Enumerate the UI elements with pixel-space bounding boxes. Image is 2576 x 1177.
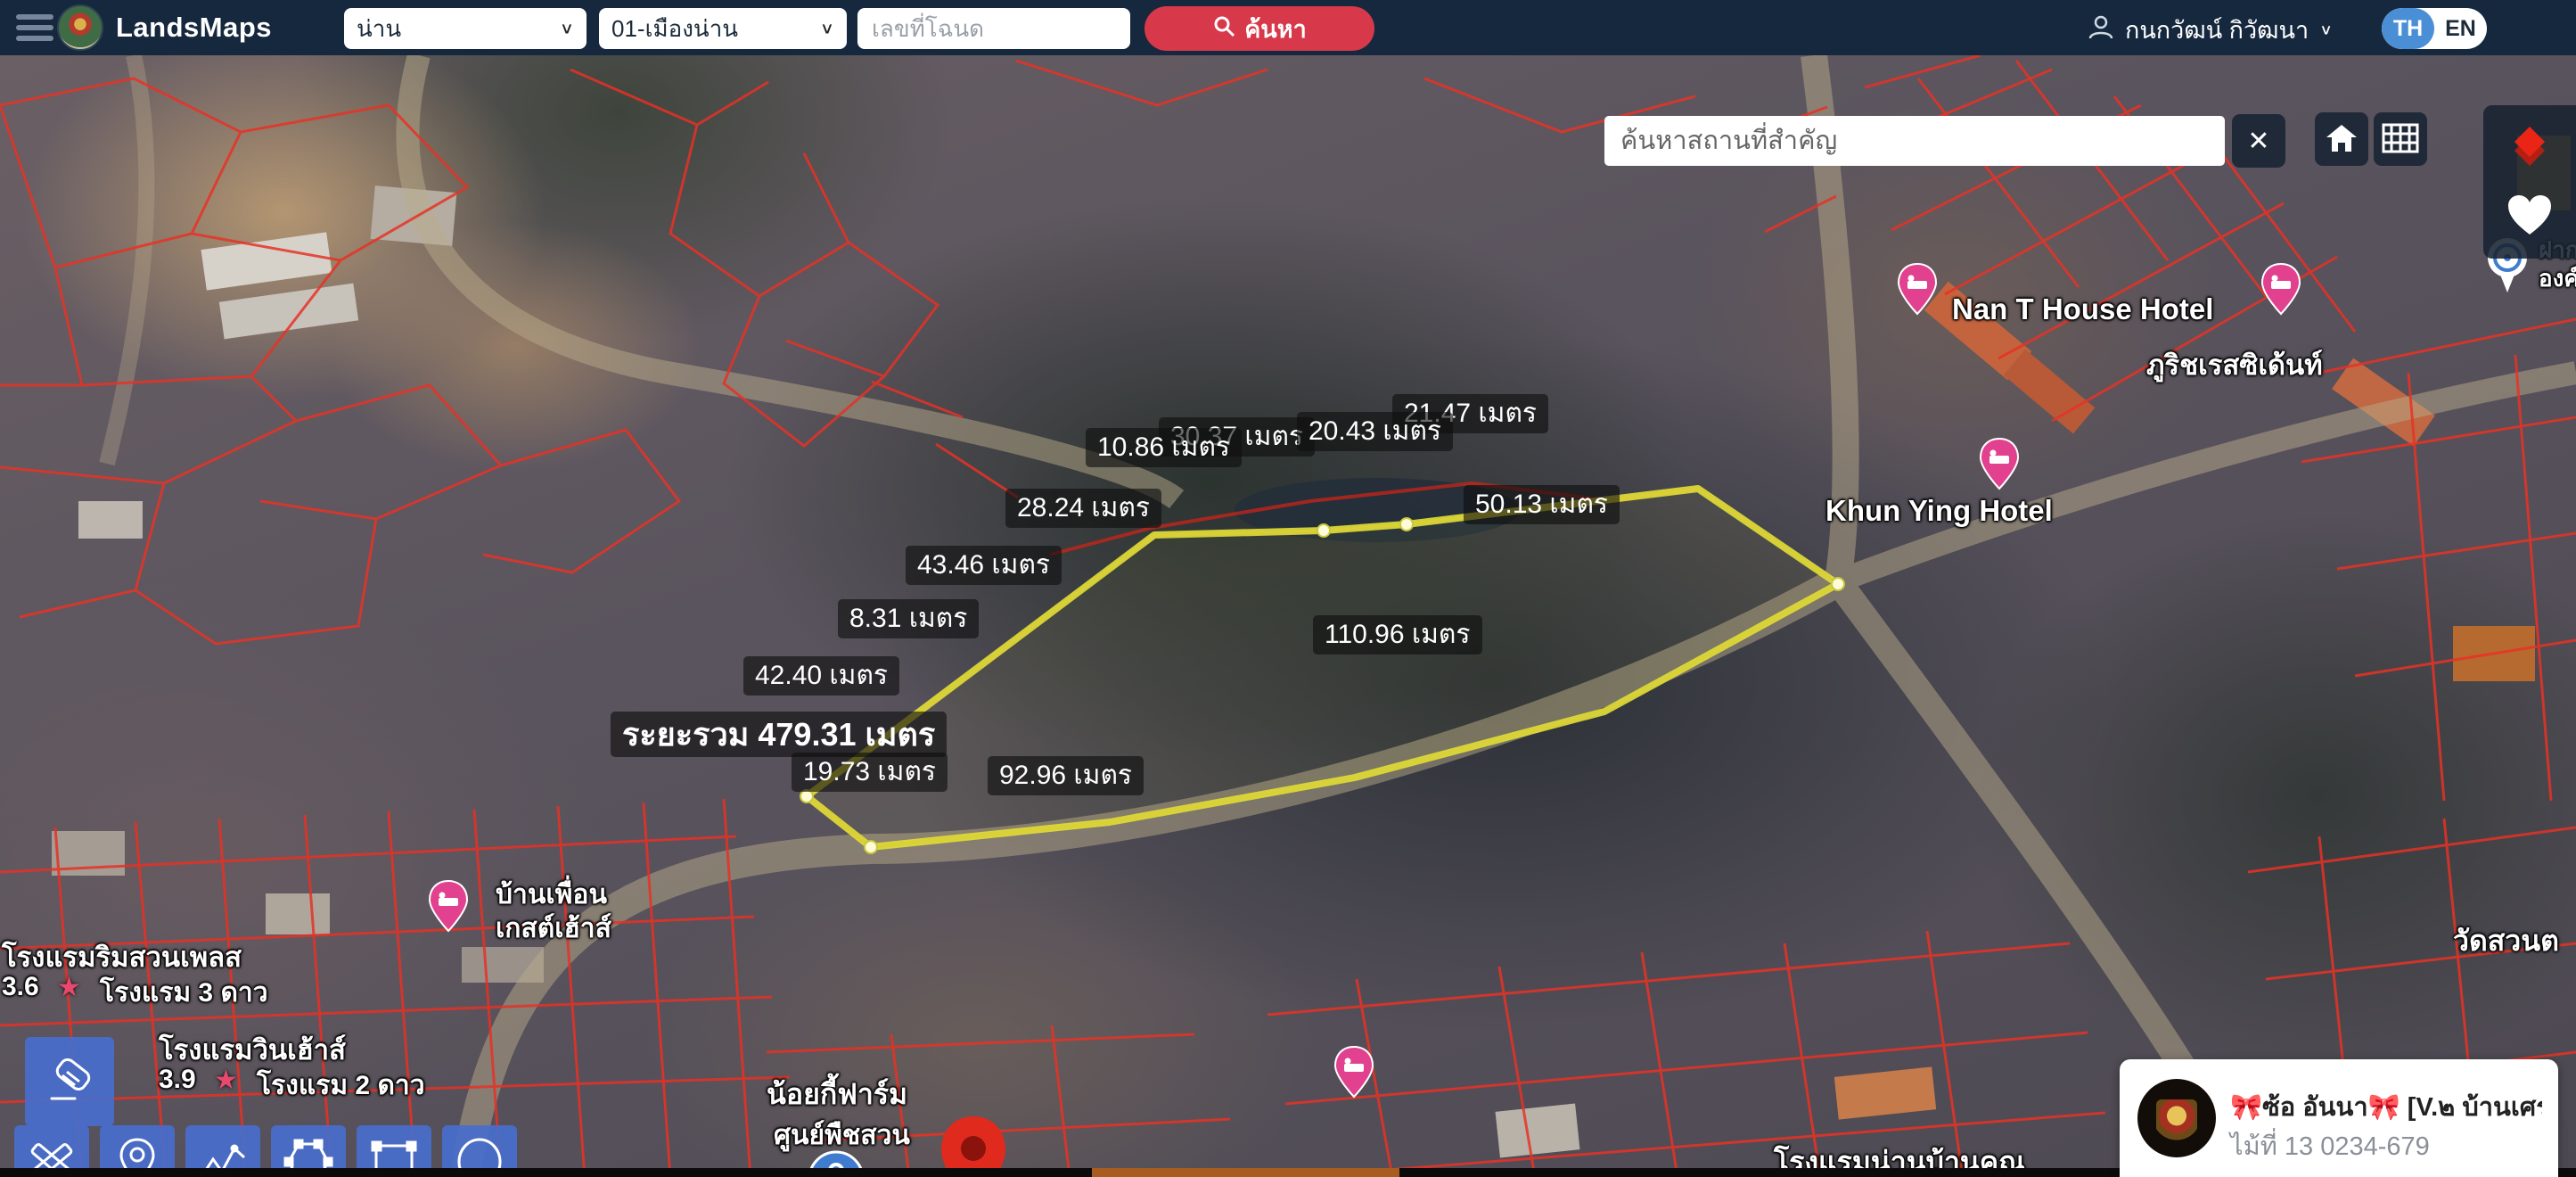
top-navbar: LandsMaps น่าน ∨ 01-เมืองน่าน ∨ ค้นหา: [0, 0, 2576, 55]
eraser-tool-button[interactable]: [25, 1037, 114, 1126]
hotel-pin[interactable]: [1979, 437, 2020, 495]
ad-subtitle: ไม้ที่ 13 0234-679: [2230, 1125, 2430, 1166]
chevron-down-icon: ∨: [820, 20, 834, 38]
app-title: LandsMaps: [116, 12, 272, 44]
heart-icon: [2506, 193, 2553, 241]
ad-title: 🎀ซ้อ อันนา🎀 [V.๒ บ้านเศรษฐสิ...: [2230, 1086, 2542, 1127]
province-select-value: น่าน: [357, 11, 401, 47]
close-icon: ✕: [2247, 126, 2269, 157]
bow-icon: 🎀: [2368, 1093, 2400, 1122]
user-menu[interactable]: กนกวัฒน์ กิวัฒนา ∨: [2088, 11, 2333, 49]
district-select-value: 01-เมืองน่าน: [611, 11, 738, 47]
favorites-button[interactable]: [2498, 185, 2561, 248]
ad-logo: [2137, 1079, 2216, 1157]
menu-button[interactable]: [16, 14, 53, 41]
district-select[interactable]: 01-เมืองน่าน ∨: [599, 8, 847, 49]
grid-icon: [2382, 123, 2419, 156]
deed-number-input[interactable]: [857, 8, 1130, 49]
home-icon: [2324, 120, 2359, 159]
lang-th-button[interactable]: TH: [2382, 8, 2434, 49]
search-icon: [1212, 14, 1235, 44]
grid-layer-button[interactable]: [2374, 112, 2427, 166]
language-toggle: TH EN: [2382, 8, 2487, 49]
hotel-pin[interactable]: [1897, 262, 1938, 320]
landsmaps-app: 21.47 เมตร30.37 เมตร20.43 เมตร10.86 เมตร…: [0, 0, 2576, 1177]
map-canvas[interactable]: [0, 55, 2576, 1177]
layers-icon: [2505, 120, 2555, 175]
map-side-panel: [2483, 105, 2576, 259]
search-button[interactable]: ค้นหา: [1144, 6, 1374, 51]
hotel-pin[interactable]: [1333, 1045, 1374, 1103]
ad-card[interactable]: 🎀ซ้อ อันนา🎀 [V.๒ บ้านเศรษฐสิ... ไม้ที่ 1…: [2120, 1059, 2558, 1177]
bow-icon: 🎀: [2230, 1093, 2262, 1122]
user-icon: [2088, 13, 2114, 46]
lang-en-button[interactable]: EN: [2434, 8, 2487, 49]
layers-button[interactable]: [2498, 116, 2561, 178]
department-of-lands-logo: [57, 4, 103, 51]
home-extent-button[interactable]: [2315, 112, 2368, 166]
chevron-down-icon: ∨: [560, 20, 574, 38]
place-search-input[interactable]: [1604, 116, 2225, 166]
chevron-down-icon: ∨: [2319, 21, 2333, 39]
hotel-pin[interactable]: [2260, 262, 2301, 320]
eraser-icon: [45, 1056, 94, 1108]
hotel-pin[interactable]: [428, 879, 469, 937]
place-search-close-button[interactable]: ✕: [2232, 114, 2285, 168]
province-select[interactable]: น่าน ∨: [344, 8, 587, 49]
search-button-label: ค้นหา: [1244, 10, 1306, 48]
user-name: กนกวัฒน์ กิวัฒนา: [2125, 11, 2309, 49]
